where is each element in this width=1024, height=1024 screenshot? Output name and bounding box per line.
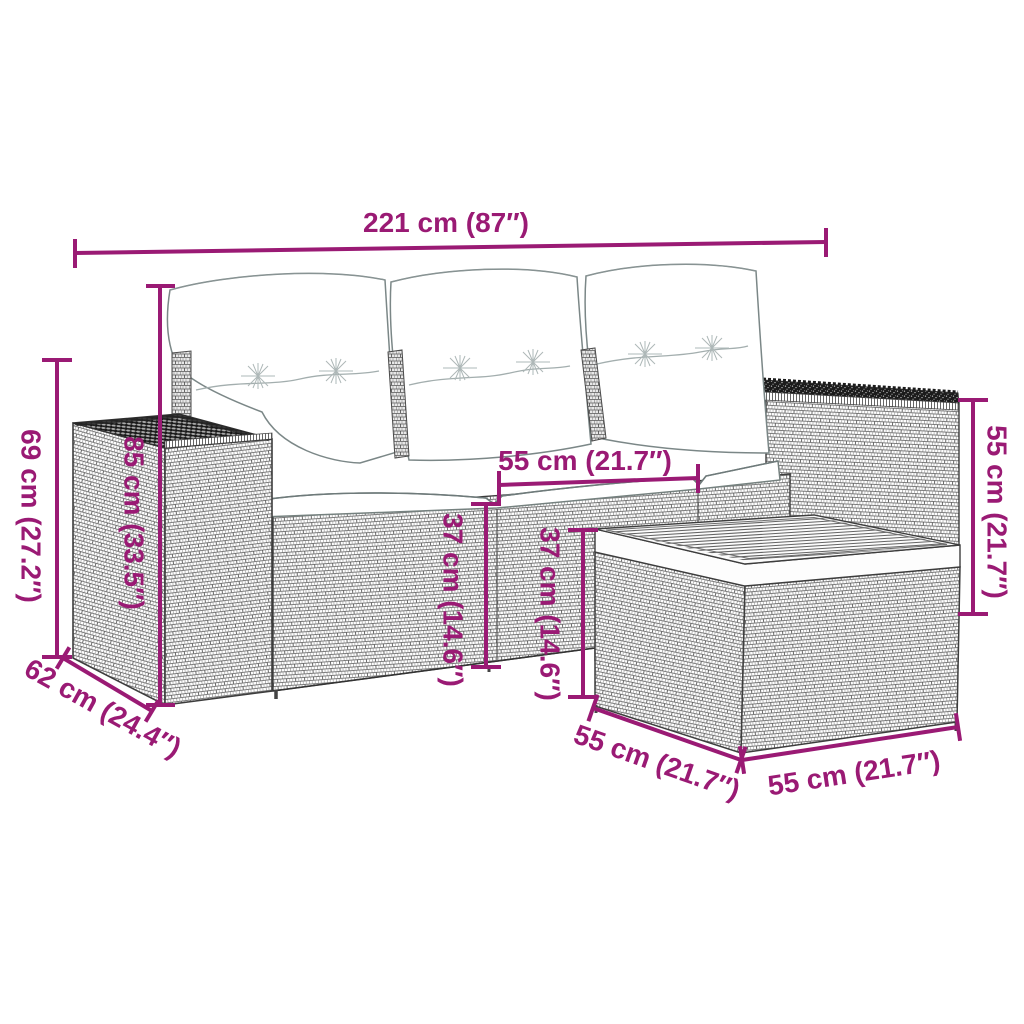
svg-text:37 cm (14.6″): 37 cm (14.6″) <box>438 513 469 687</box>
svg-text:221 cm (87″): 221 cm (87″) <box>363 207 529 238</box>
svg-text:55 cm (21.7″): 55 cm (21.7″) <box>982 425 1013 599</box>
svg-text:85 cm (33.5″): 85 cm (33.5″) <box>119 436 150 610</box>
svg-text:55 cm (21.7″): 55 cm (21.7″) <box>498 445 672 476</box>
svg-text:37 cm (14.6″): 37 cm (14.6″) <box>535 527 566 701</box>
svg-text:69 cm (27.2″): 69 cm (27.2″) <box>16 429 47 603</box>
